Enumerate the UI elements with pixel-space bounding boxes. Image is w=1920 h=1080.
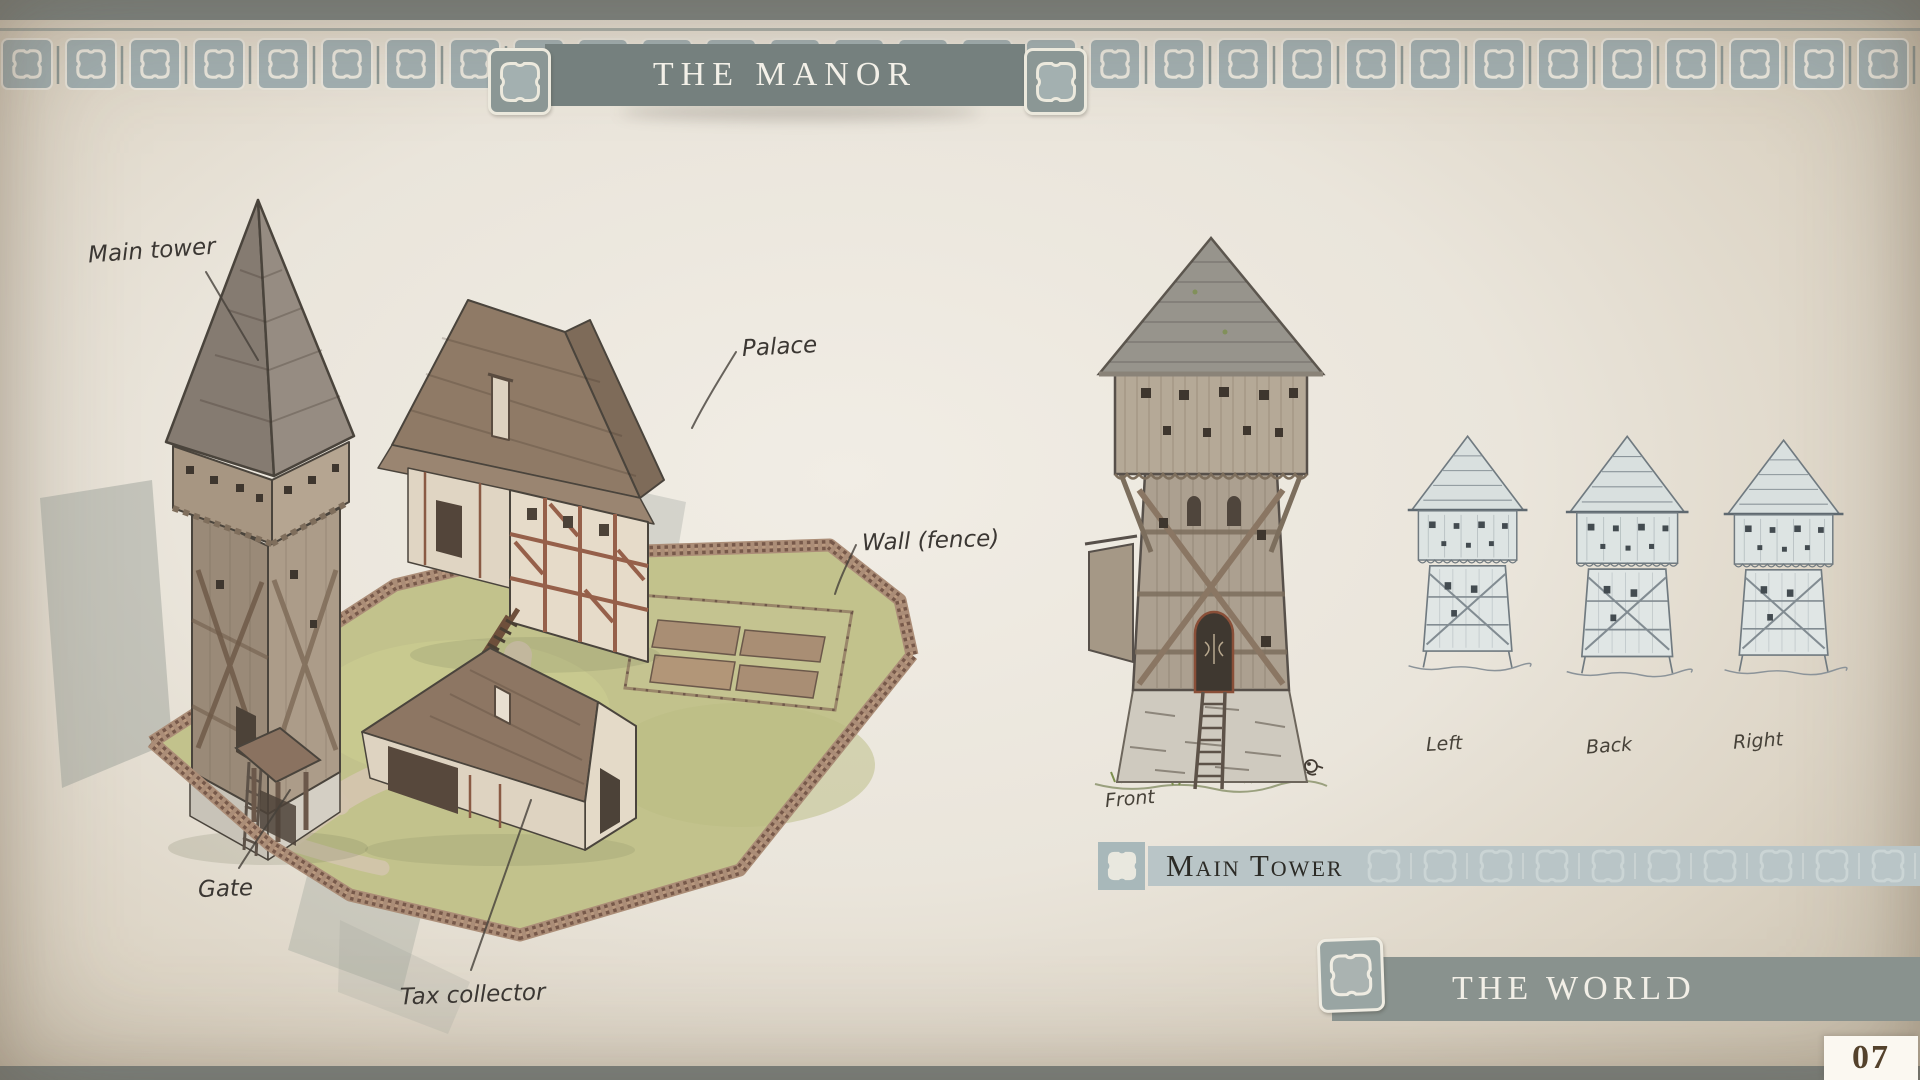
puzzle-piece-icon	[1317, 937, 1386, 1013]
label-back-view: Back	[1585, 733, 1633, 758]
puzzle-piece-icon	[488, 48, 551, 115]
label-front-view: Front	[1104, 786, 1156, 812]
the-world-section-banner: THE WORLD	[1318, 938, 1920, 1022]
section-title: Main Tower	[1166, 848, 1344, 884]
main-tower-bar: Main Tower	[1148, 846, 1920, 886]
label-wall-fence: Wall (fence)	[862, 526, 1000, 557]
label-palace: Palace	[741, 332, 818, 362]
puzzle-piece-icon	[1024, 48, 1087, 115]
title-banner: THE MANOR	[545, 44, 1025, 106]
puzzle-piece-icon	[1098, 842, 1145, 890]
next-section-title: THE WORLD	[1452, 970, 1696, 1008]
faint-ornament-pattern	[1360, 846, 1920, 886]
artbook-page: THE MANOR	[0, 0, 1920, 1080]
label-tax-collector: Tax collector	[400, 979, 546, 1010]
label-right-view: Right	[1732, 728, 1783, 753]
label-left-view: Left	[1425, 732, 1463, 756]
top-frame-bar	[0, 0, 1920, 20]
manor-illustration	[40, 150, 1010, 1060]
bird-doodle	[1305, 760, 1323, 775]
page-title: THE MANOR	[653, 56, 917, 94]
banner-shadow	[620, 104, 980, 120]
main-tower-section-banner: Main Tower	[1098, 842, 1920, 890]
bottom-frame-bar	[0, 1066, 1920, 1080]
page-number-text: 07	[1852, 1039, 1890, 1077]
main-tower-front-drawing	[1075, 222, 1347, 807]
page-number: 07	[1824, 1036, 1918, 1080]
tower-side-sketches	[1400, 428, 1870, 728]
header-rule	[0, 28, 1920, 31]
garden-beds	[625, 595, 852, 710]
label-gate: Gate	[198, 875, 254, 903]
the-world-bar: THE WORLD	[1332, 957, 1920, 1021]
